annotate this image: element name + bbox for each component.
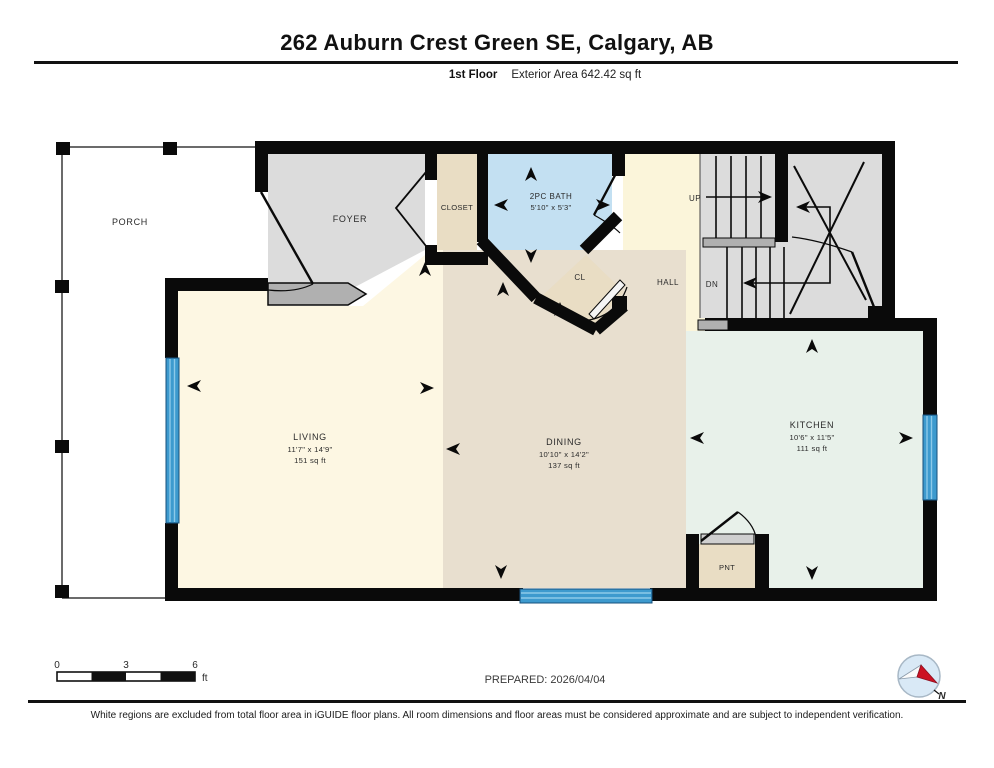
- scale-3: 3: [123, 660, 129, 671]
- stair-wall-cap: [698, 320, 728, 330]
- hall-label: HALL: [657, 278, 679, 287]
- cl-label: CL: [574, 273, 585, 282]
- prepared-date: PREPARED: 2026/04/04: [485, 674, 606, 686]
- room-fills: [178, 154, 923, 588]
- room-foyer-area: [268, 154, 425, 295]
- up-label: UP: [689, 194, 701, 203]
- bath-label: 2PC BATH: [530, 192, 573, 201]
- dining-label: DINING: [546, 437, 582, 447]
- living-label: LIVING: [293, 432, 327, 442]
- window-living: [166, 358, 179, 523]
- floor-plan-page: 262 Auburn Crest Green SE, Calgary, AB 1…: [0, 0, 994, 768]
- foyer-label: FOYER: [333, 214, 368, 224]
- scale-bar: 0 3 6 ft: [48, 658, 218, 692]
- dn-label: DN: [706, 280, 719, 289]
- entry-step: [268, 283, 366, 305]
- window-kitchen: [923, 415, 937, 500]
- porch-label: PORCH: [112, 217, 148, 227]
- scale-6: 6: [192, 660, 198, 671]
- bath-dims: 5'10" x 5'3": [530, 203, 571, 212]
- disclaimer-text: White regions are excluded from total fl…: [0, 710, 994, 721]
- dining-area: 137 sq ft: [548, 461, 580, 470]
- kitchen-area: 111 sq ft: [797, 444, 828, 453]
- window-dining: [520, 589, 652, 603]
- kitchen-label: KITCHEN: [790, 420, 834, 430]
- footer-divider: [28, 700, 966, 703]
- scale-unit: ft: [202, 673, 208, 684]
- stair-handrail: [703, 238, 775, 247]
- closet-label: CLOSET: [441, 203, 473, 212]
- porch-posts: [55, 142, 177, 598]
- living-dims: 11'7" x 14'9": [288, 445, 333, 454]
- floor-plan-canvas: PORCH FOYER CLOSET 2PC BATH 5'10" x 5'3"…: [0, 0, 994, 768]
- kitchen-dims: 10'6" x 11'5": [790, 433, 835, 442]
- scale-0: 0: [54, 660, 60, 671]
- dining-dims: 10'10" x 14'2": [539, 450, 589, 459]
- pantry-label: PNT: [719, 563, 735, 572]
- compass: N: [893, 650, 953, 702]
- living-area: 151 sq ft: [294, 456, 326, 465]
